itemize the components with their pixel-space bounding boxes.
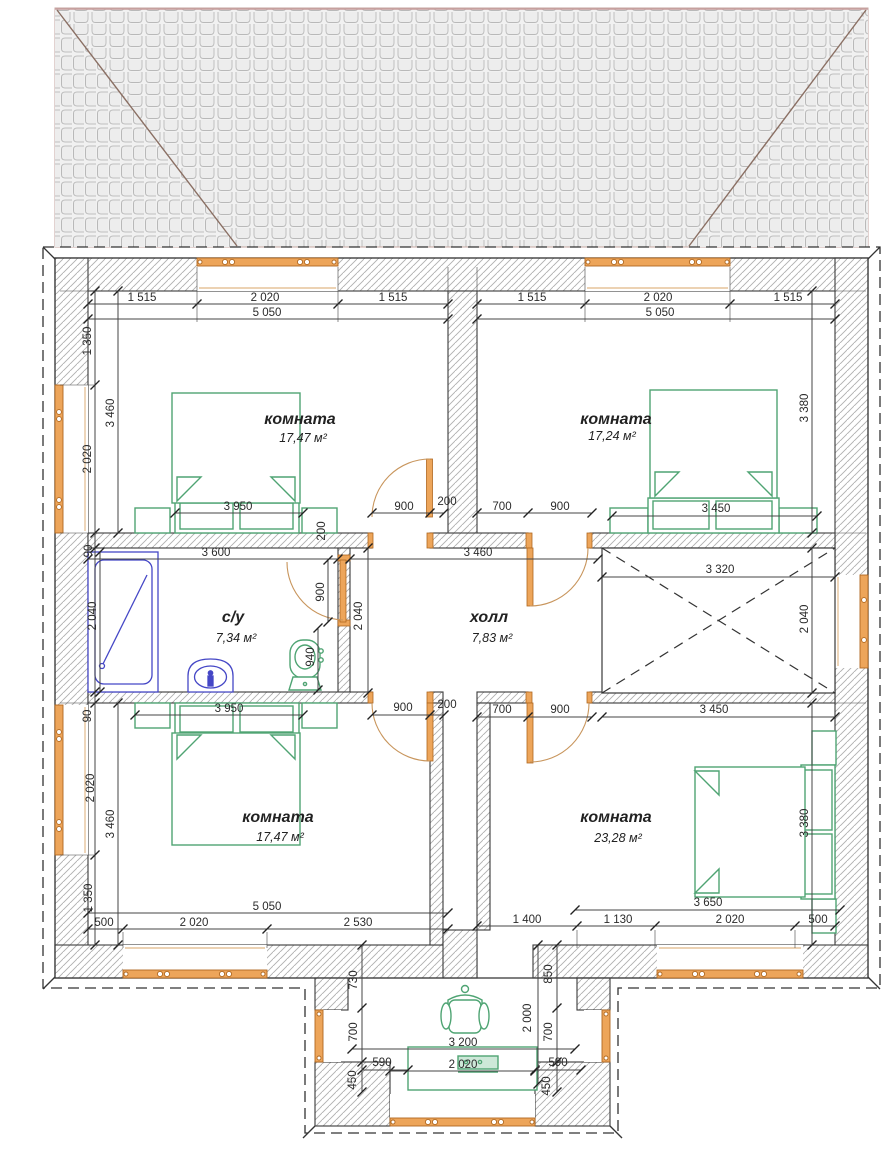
dimension-label: 700 [348, 1022, 360, 1041]
dimension-label: 1 515 [379, 292, 408, 304]
dimension-label: 2 020 [251, 292, 280, 304]
dimension-label: 700 [543, 1022, 555, 1041]
room-bottom-left-name: комната [242, 809, 314, 826]
window-top-right [585, 258, 730, 266]
dimension-label: 200 [437, 699, 456, 711]
dimension-label: 2 040 [799, 605, 811, 634]
dimension-label: 590 [548, 1057, 567, 1069]
dimension-label: 1 515 [774, 292, 803, 304]
wall-mid-lower-d [590, 692, 835, 703]
window-bottom-left [123, 970, 267, 978]
wall-mid-upper-a [88, 533, 372, 548]
dimension-label: 90 [82, 710, 94, 723]
dimension-label: 900 [393, 702, 412, 714]
dimension-label: 2 530 [344, 917, 373, 929]
dimension-label: 2 000 [522, 1004, 534, 1033]
dimension-label: 590 [372, 1057, 391, 1069]
dimension-label: 1 515 [128, 292, 157, 304]
dimension-label: 5 050 [253, 307, 282, 319]
room-bottom-right-area: 23,28 м² [593, 831, 642, 845]
dimension-label: 1 400 [513, 914, 542, 926]
dimension-label: 450 [541, 1076, 553, 1095]
room-bottom-right-name: комната [580, 809, 652, 826]
dimension-label: 2 040 [87, 602, 99, 631]
dimension-label: 2 020 [180, 917, 209, 929]
dimension-label: 3 380 [799, 809, 811, 838]
dimension-label: 1 130 [604, 914, 633, 926]
dimension-label: 3 450 [702, 503, 731, 515]
window-top-left [197, 258, 338, 266]
dimension-label: 1 350 [82, 327, 94, 356]
dimension-label: 900 [394, 501, 413, 513]
room-top-right-region [477, 291, 835, 533]
wall-mid-upper-c [590, 533, 835, 548]
floor-plan-drawing: 1 5152 0201 5155 0501 5152 0201 5155 050… [0, 0, 896, 1166]
wall-mid-upper-b [430, 533, 528, 548]
dimension-label: 3 460 [464, 547, 493, 559]
floor-plan-sheet: 1 5152 0201 5155 0501 5152 0201 5155 050… [0, 0, 896, 1166]
dimension-label: 730 [348, 970, 360, 989]
wall-top [55, 258, 868, 291]
dimension-label: 2 020 [85, 774, 97, 803]
dimension-label: 2 020 [644, 292, 673, 304]
hall-area: 7,83 м² [472, 631, 513, 645]
dimension-label: 200 [437, 496, 456, 508]
dimension-label: 940 [305, 647, 317, 666]
dimension-label: 3 460 [105, 399, 117, 428]
wall-mid-lower-a [88, 692, 372, 703]
dimension-label: 3 320 [706, 564, 735, 576]
dimension-label: 1 515 [518, 292, 547, 304]
porch-wall-upper-left [315, 978, 348, 1010]
dimension-label: 3 200 [449, 1037, 478, 1049]
dimension-label: 2 020 [82, 445, 94, 474]
dimension-label: 200 [316, 521, 328, 540]
dimension-label: 500 [808, 914, 827, 926]
dimension-label: 1 350 [83, 884, 95, 913]
dimension-label: 500 [94, 917, 113, 929]
room-top-left-name: комната [264, 411, 336, 428]
window-bottom-right [657, 970, 803, 978]
room-top-left-area: 17,47 м² [279, 431, 327, 445]
bathroom-name: с/у [222, 609, 245, 626]
dimension-label: 3 460 [105, 810, 117, 839]
dimension-label: 5 050 [253, 901, 282, 913]
dimension-label: 700 [492, 501, 511, 513]
room-top-right-area: 17,24 м² [588, 429, 636, 443]
room-top-right-name: комната [580, 411, 652, 428]
bathroom-region [88, 548, 338, 692]
window-porch-left [315, 1010, 323, 1062]
hall-name: холл [469, 609, 508, 626]
dimension-label: 900 [550, 501, 569, 513]
wall-corridor-right [477, 703, 490, 930]
dimension-label: 450 [347, 1070, 359, 1089]
dimension-label: 3 950 [224, 501, 253, 513]
dimension-label: 900 [315, 582, 327, 601]
bathroom-area: 7,34 м² [216, 631, 257, 645]
room-bottom-left-area: 17,47 м² [256, 830, 304, 844]
wall-pier [443, 930, 477, 978]
dimension-label: 2 020 [716, 914, 745, 926]
room-bottom-right-region [490, 703, 835, 945]
dimension-label: 3 650 [694, 897, 723, 909]
dimension-label: 3 600 [202, 547, 231, 559]
roof [55, 8, 868, 247]
dimension-label: 2 040 [353, 602, 365, 631]
dimension-label: 5 050 [646, 307, 675, 319]
dimension-label: 900 [550, 704, 569, 716]
dimension-label: 850 [543, 964, 555, 983]
wall-between-top-rooms [448, 291, 477, 548]
window-left-upper [55, 385, 63, 533]
dimension-label: 3 380 [799, 394, 811, 423]
door-leaf-bathroom [340, 560, 346, 622]
porch-wall-upper-right [577, 978, 610, 1010]
window-right [860, 575, 868, 668]
dimension-label: 700 [492, 704, 511, 716]
dimension-label: 3 450 [700, 704, 729, 716]
dimension-label: 3 950 [215, 703, 244, 715]
dimension-label: 2 020 [449, 1059, 478, 1071]
wall-left [55, 258, 88, 978]
window-left-lower [55, 705, 63, 855]
window-porch-right [602, 1010, 610, 1062]
window-porch-bottom [390, 1118, 535, 1126]
dimension-label: 90 [83, 545, 95, 558]
wall-mid-lower-c [477, 692, 528, 703]
